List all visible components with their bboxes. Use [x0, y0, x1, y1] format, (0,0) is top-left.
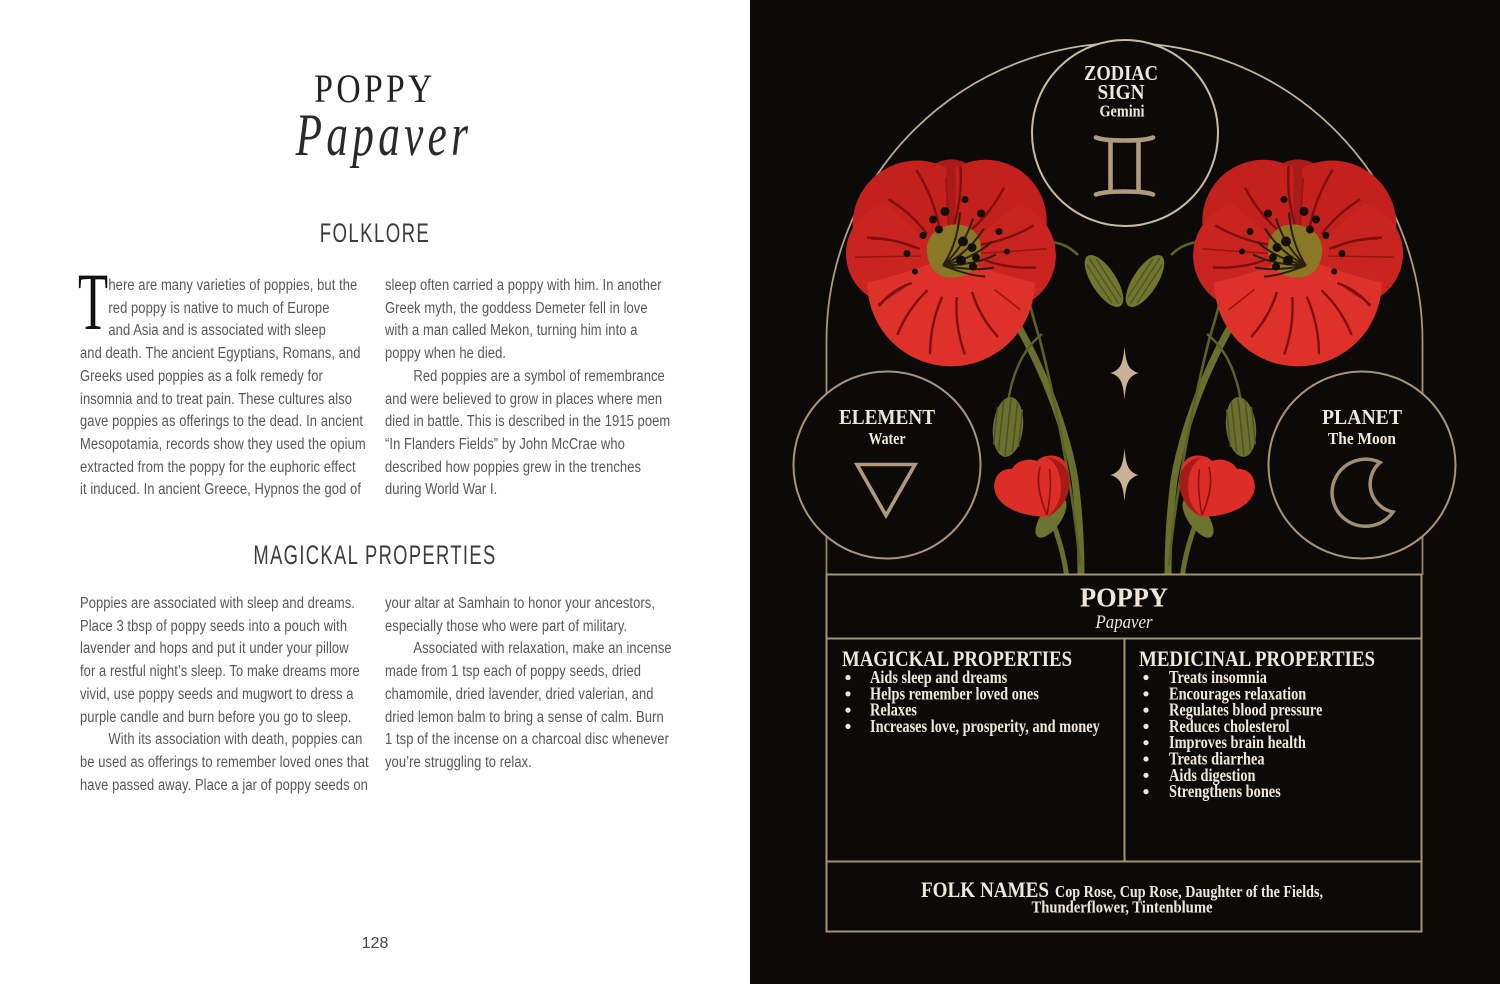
- svg-text:Thunderflower, Tintenblume: Thunderflower, Tintenblume: [1032, 898, 1213, 917]
- svg-text:Water: Water: [869, 429, 906, 448]
- svg-text:MAGICKAL PROPERTIES: MAGICKAL PROPERTIES: [842, 646, 1072, 671]
- svg-text:ELEMENT: ELEMENT: [839, 405, 935, 429]
- svg-text:Strengthens bones: Strengthens bones: [1169, 783, 1281, 802]
- svg-text:Gemini: Gemini: [1100, 102, 1145, 121]
- svg-text:MEDICINAL PROPERTIES: MEDICINAL PROPERTIES: [1139, 646, 1375, 671]
- svg-text:POPPY: POPPY: [1080, 582, 1168, 613]
- svg-text:PLANET: PLANET: [1322, 405, 1402, 429]
- svg-text:SIGN: SIGN: [1098, 80, 1145, 104]
- svg-text:Increases love, prosperity, an: Increases love, prosperity, and money: [870, 718, 1100, 737]
- svg-text:Papaver: Papaver: [1095, 612, 1153, 633]
- svg-text:The Moon: The Moon: [1328, 429, 1396, 448]
